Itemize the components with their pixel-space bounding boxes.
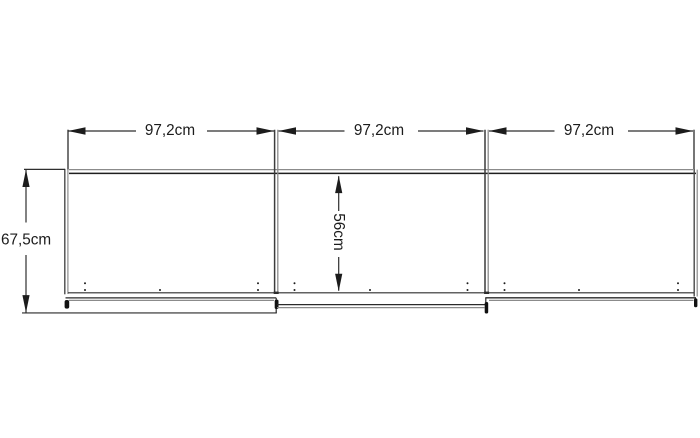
svg-text:56cm: 56cm — [330, 213, 347, 250]
svg-text:97,2cm: 97,2cm — [564, 122, 614, 139]
svg-text:97,2cm: 97,2cm — [354, 122, 404, 139]
svg-text:67,5cm: 67,5cm — [1, 232, 51, 249]
svg-text:97,2cm: 97,2cm — [145, 122, 195, 139]
